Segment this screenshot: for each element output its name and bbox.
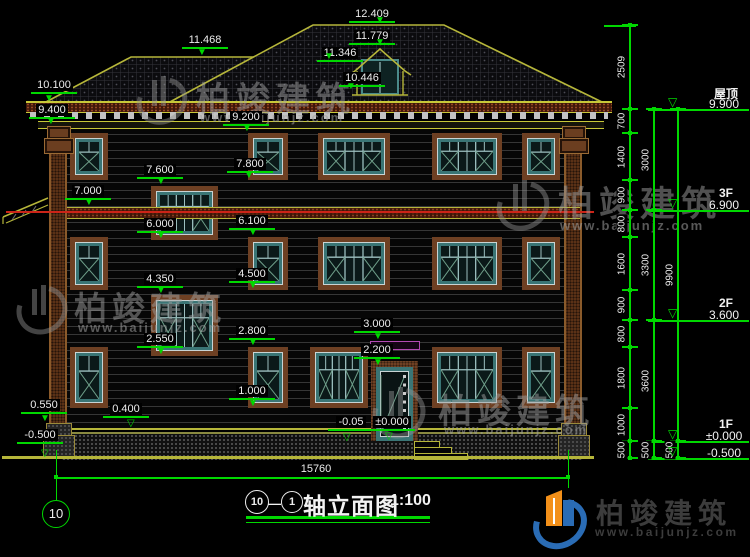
level-arrow-icon: ▼: [248, 228, 258, 237]
dim-underline: [349, 21, 395, 23]
dim-underline: [349, 43, 395, 45]
level-mark-icon: ▽: [668, 447, 677, 456]
chain-tick-dot: [628, 131, 632, 135]
level-arrow-icon: ▼: [156, 347, 166, 356]
window: [522, 133, 560, 180]
level-arrow-icon: ▽: [41, 449, 49, 458]
dim-label-d11468: 11.468: [171, 34, 239, 46]
eave-dentils: [30, 112, 608, 119]
right-pilaster: [564, 152, 582, 423]
level-arrow-icon: ▼: [46, 117, 56, 126]
level-arrow-icon: ▼: [84, 198, 94, 207]
chain-tick-dot: [628, 345, 632, 349]
dim-label-d10100: 10.100: [20, 79, 88, 91]
level-arrow-icon: ▼: [156, 286, 166, 295]
window: [70, 133, 108, 180]
dim-label-d4500: 4.500: [218, 268, 286, 280]
window: [432, 347, 502, 408]
chain-dim: 700: [617, 112, 628, 131]
dim-label-d3000: 3.000: [343, 318, 411, 330]
chain-dim: 1600: [617, 251, 628, 275]
chain-tick-dot: [628, 107, 632, 111]
level-arrow-icon: ▽: [127, 419, 135, 428]
chain-dim: 1800: [617, 365, 628, 389]
level-value: 6.900: [694, 198, 750, 212]
chain-tick-dot: [628, 178, 632, 182]
axis-line-right: [568, 450, 570, 488]
level-mark-icon: ▽: [668, 430, 677, 439]
title-axis-circle-1: 1: [281, 491, 303, 513]
dim-label-d0550: 0.550: [10, 399, 78, 411]
chain-tick-dot: [628, 439, 632, 443]
level-arrow-icon: ▼: [156, 177, 166, 186]
window: [522, 347, 560, 408]
level-arrow-icon: ▼: [248, 281, 258, 290]
chain-tick-dot: [628, 208, 632, 212]
dim-underline: [103, 416, 149, 418]
window: [432, 133, 502, 180]
level-arrow-icon: ▼: [44, 94, 54, 103]
chain-dim: 3600: [641, 368, 652, 392]
title-underline: [246, 522, 430, 523]
chain-tick-dot: [652, 107, 656, 111]
chain-line: [677, 109, 679, 458]
dim-label-d1000: 1.000: [218, 385, 286, 397]
level-value: -0.500: [694, 446, 750, 460]
level-value: ±0.000: [694, 429, 750, 443]
chain-dim: 1000: [617, 412, 628, 436]
dim-label-dpm0: ±0.000: [358, 416, 426, 428]
level-arrow-icon: ▼: [156, 231, 166, 240]
window: [522, 237, 560, 290]
chain-tick-dot: [652, 456, 656, 460]
dim-label-d6100: 6.100: [218, 215, 286, 227]
chain-dim: 9900: [665, 263, 676, 287]
window: [248, 133, 288, 180]
level-arrow-icon: ▼: [248, 338, 258, 347]
chain-dim: 500: [617, 440, 628, 459]
level-arrow-icon: ▼: [248, 399, 258, 408]
chain-tick-dot: [628, 406, 632, 410]
dim-end-dot: [566, 475, 570, 479]
chain-dim: 900: [617, 296, 628, 315]
dim-label-d4350: 4.350: [126, 273, 194, 285]
chain-dim: 3300: [641, 253, 652, 277]
level-arrow-icon: ▼: [346, 82, 356, 91]
title-axis-circle-10: 10: [245, 490, 269, 514]
chain-line: [653, 109, 655, 458]
chain-tick-dot: [628, 456, 632, 460]
chain-tick-dot: [628, 288, 632, 292]
chain-dim: 500: [641, 440, 652, 459]
chain-dim: 800: [617, 214, 628, 233]
chain-line: [629, 25, 631, 458]
chain-dim: 1400: [617, 144, 628, 168]
level-arrow-icon: ▼: [244, 171, 254, 180]
level-value: 9.900: [694, 97, 750, 111]
chain-tick-dot: [628, 318, 632, 322]
level-mark-icon: ▽: [668, 98, 677, 107]
dim-label-d2550: 2.550: [126, 333, 194, 345]
dim-label-dm0500: -0.500: [6, 429, 74, 441]
brand-url: www.baijunjz.com: [595, 525, 739, 539]
window: [318, 237, 390, 290]
dim-label-d10446: 10.446: [328, 72, 396, 84]
level-mark-icon: ▽: [668, 199, 677, 208]
chain-dim: 3000: [641, 147, 652, 171]
level-arrow-icon: ▼: [373, 358, 383, 367]
chain-dim: 800: [617, 324, 628, 343]
drawing-scale: 1:100: [390, 492, 431, 510]
dim-label-d7000: 7.000: [54, 185, 122, 197]
dim-label-d11346: 11.346: [306, 47, 374, 59]
dim-label-d11779: 11.779: [338, 30, 406, 42]
dim-label-d7600: 7.600: [126, 164, 194, 176]
axis-bubble: 10: [42, 500, 70, 528]
dim-label-d12409: 12.409: [338, 8, 406, 20]
level-value: 3.600: [694, 308, 750, 322]
chain-tick-dot: [628, 235, 632, 239]
dim-label-d6000: 6.000: [126, 218, 194, 230]
dim-label-d2200: 2.200: [343, 344, 411, 356]
dim-underline: [328, 429, 374, 431]
window: [70, 237, 108, 290]
left-pilaster-capital: [44, 138, 74, 154]
eave-band: [38, 121, 604, 129]
overall-dim-line: [56, 477, 568, 479]
dim-label-d9200: 9.200: [212, 111, 280, 123]
dim-label-d0400: 0.400: [92, 403, 160, 415]
ground-line: [2, 456, 594, 459]
dim-label-d7800: 7.800: [216, 158, 284, 170]
title-axis-separator: —: [268, 496, 281, 511]
level-mark-icon: ▽: [668, 309, 677, 318]
dim-underline: [31, 92, 77, 94]
window: [432, 237, 502, 290]
chain-tick-dot: [652, 318, 656, 322]
level-arrow-icon: ▼: [375, 16, 385, 25]
chain-tick-dot: [628, 23, 632, 27]
dim-underline: [17, 442, 63, 444]
chain-tick-dot: [652, 208, 656, 212]
level-arrow-icon: ▼: [324, 52, 334, 61]
chain-dim: 2509: [617, 55, 628, 79]
dim-label-d2800: 2.800: [218, 325, 286, 337]
chain-tick-dot: [652, 439, 656, 443]
level-arrow-icon: ▼: [197, 48, 207, 57]
right-pilaster-capital: [559, 138, 589, 154]
porch-eave-line: [6, 211, 594, 213]
elevation-drawing: 12.409▼11.779▼11.346▼10.446▼11.468▼10.10…: [0, 0, 750, 557]
dim-end-dot: [54, 475, 58, 479]
chain-dim: 900: [617, 186, 628, 205]
overall-dim-label: 15760: [286, 463, 346, 475]
dim-label-d9400: 9.400: [18, 104, 86, 116]
level-arrow-icon: ▼: [242, 124, 252, 133]
level-arrow-icon: ▼: [375, 38, 385, 47]
window: [318, 133, 390, 180]
drawing-title: 轴立面图: [303, 487, 399, 521]
level-arrow-icon: ▽: [385, 432, 393, 441]
level-arrow-icon: ▽: [343, 433, 351, 442]
level-arrow-icon: ▼: [40, 414, 50, 423]
level-arrow-icon: ▼: [373, 332, 383, 341]
